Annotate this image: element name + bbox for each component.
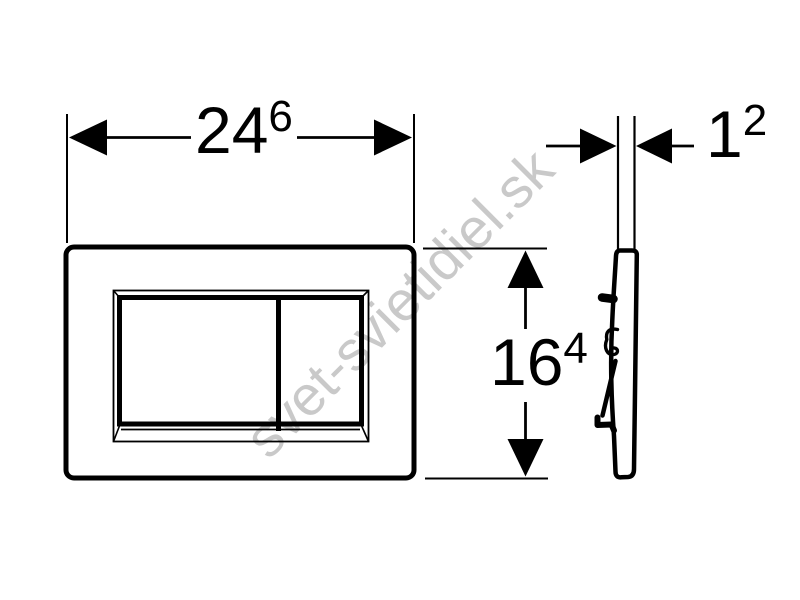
button-block-outline: [120, 298, 362, 425]
dimension-thickness-label: 1 2: [706, 101, 767, 167]
dimension-thickness-value: 1: [706, 101, 743, 167]
front-view-plate: [66, 247, 414, 478]
side-view-plate: [598, 251, 637, 478]
plate-recess-outline: [114, 291, 369, 442]
dimension-height-label: 16 4: [490, 329, 588, 395]
arrowhead-left: [636, 129, 672, 164]
bevel-corner-lines: [114, 291, 369, 442]
drawing-svg: [0, 0, 800, 600]
arrowhead-down: [508, 439, 544, 477]
dimension-thickness: [546, 116, 694, 249]
dimension-height-superscript: 4: [563, 327, 587, 371]
dimension-height-value: 16: [490, 329, 563, 395]
dimension-width-superscript: 6: [268, 95, 292, 139]
arrowhead-right: [580, 129, 617, 164]
fixing-nub: [602, 298, 614, 300]
arrowhead-up: [508, 251, 544, 289]
arrowhead-left: [69, 120, 107, 156]
dimension-width-label: 24 6: [195, 97, 293, 163]
dimension-width-value: 24: [195, 97, 268, 163]
dimension-thickness-superscript: 2: [743, 99, 767, 143]
arrowhead-right: [374, 120, 412, 156]
technical-drawing-canvas: svet-svietidiel.sk: [0, 0, 800, 600]
